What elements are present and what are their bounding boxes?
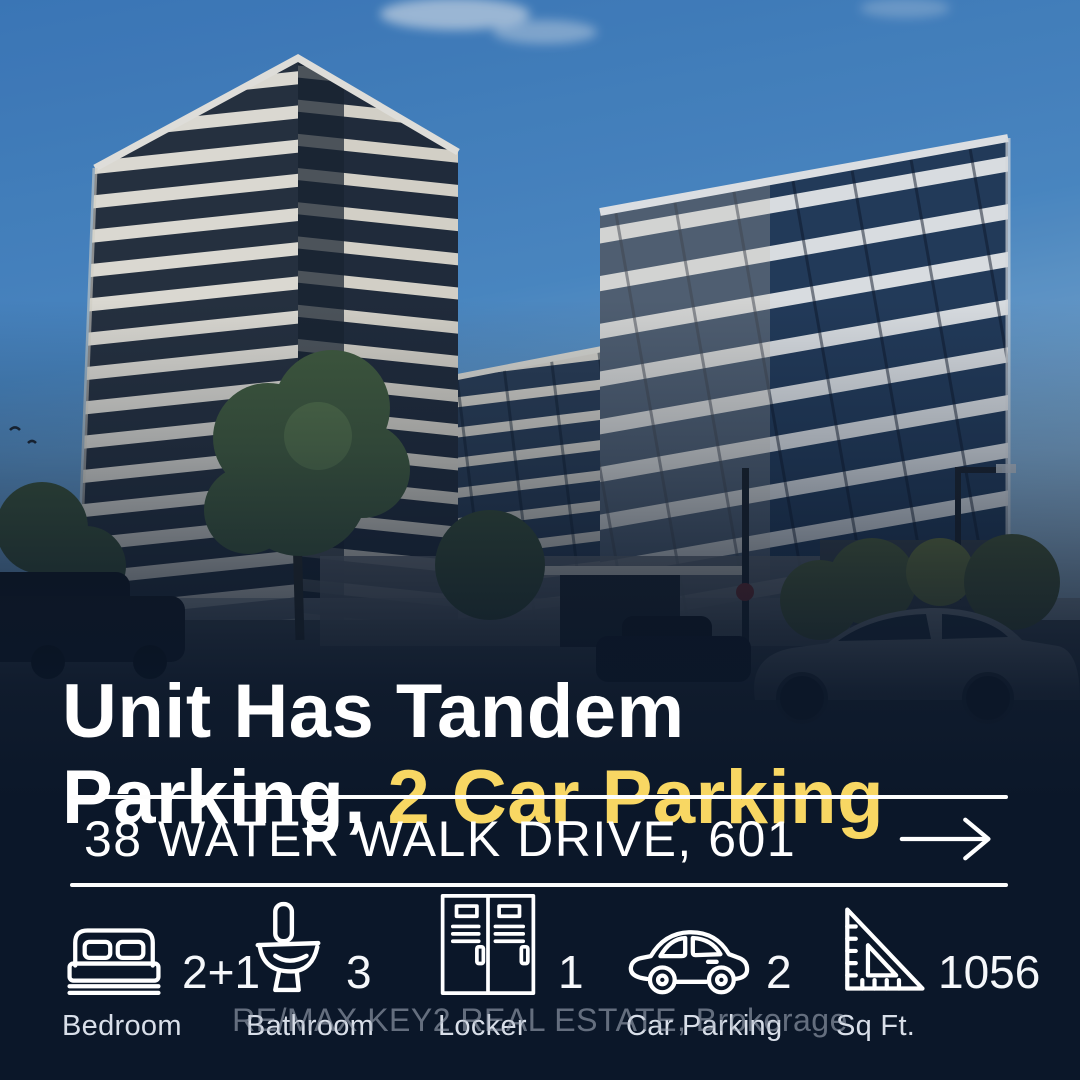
bathroom-value: 3 <box>346 949 372 998</box>
sqft-label: Sq Ft. <box>836 1010 1040 1043</box>
brokerage-watermark: RE/MAX KEY2 REAL ESTATE, Brokerage <box>232 1002 848 1039</box>
bed-icon <box>62 914 166 998</box>
arrow-right-icon[interactable] <box>898 812 998 866</box>
bedroom-label: Bedroom <box>62 1010 260 1043</box>
stat-bedroom: 2+1 Bedroom <box>62 886 260 1043</box>
locker-value: 1 <box>558 949 584 998</box>
address-row: 38 WATER WALK DRIVE, 601 <box>84 810 1010 868</box>
stat-sqft: 1056 Sq Ft. <box>836 886 1040 1043</box>
address-text: 38 WATER WALK DRIVE, 601 <box>84 810 796 868</box>
sqft-value: 1056 <box>938 949 1040 998</box>
ruler-icon <box>836 902 930 998</box>
divider-top <box>70 795 1008 799</box>
headline-line1: Unit Has Tandem <box>62 669 685 754</box>
locker-icon <box>438 891 538 998</box>
car-parking-value: 2 <box>766 949 792 998</box>
toilet-icon <box>246 898 328 998</box>
car-icon <box>626 918 752 998</box>
listing-flyer: Unit Has Tandem Parking, 2 Car Parking 3… <box>0 0 1080 1080</box>
